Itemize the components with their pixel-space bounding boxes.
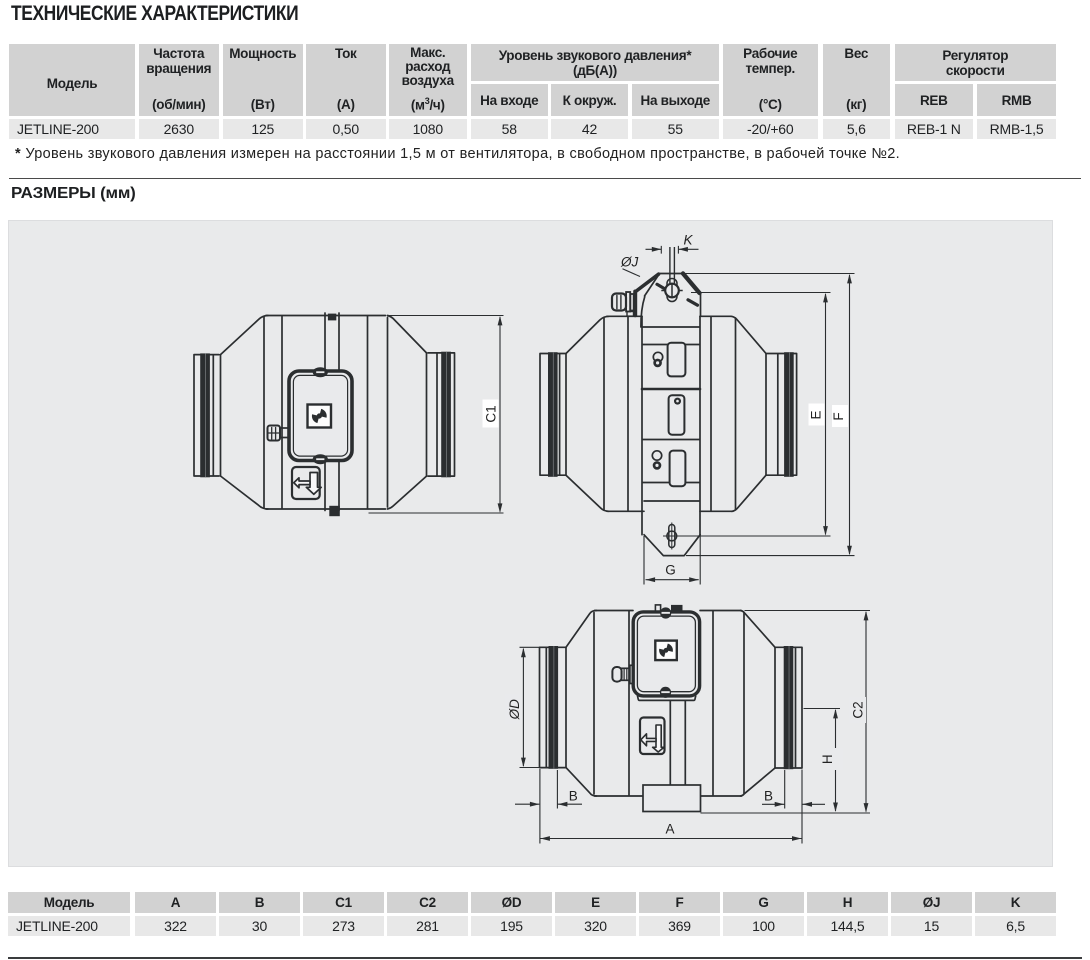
svg-text:C2: C2 xyxy=(851,701,866,718)
svg-text:ØD: ØD xyxy=(507,699,522,721)
svg-text:G: G xyxy=(665,563,676,578)
svg-text:H: H xyxy=(820,754,835,764)
svg-text:K: K xyxy=(684,233,694,248)
svg-text:A: A xyxy=(665,822,674,837)
svg-text:B: B xyxy=(569,788,578,803)
svg-text:B: B xyxy=(764,788,773,803)
svg-text:C1: C1 xyxy=(484,405,499,422)
svg-text:E: E xyxy=(809,410,824,419)
svg-text:ØJ: ØJ xyxy=(620,255,639,270)
svg-text:F: F xyxy=(831,412,846,420)
